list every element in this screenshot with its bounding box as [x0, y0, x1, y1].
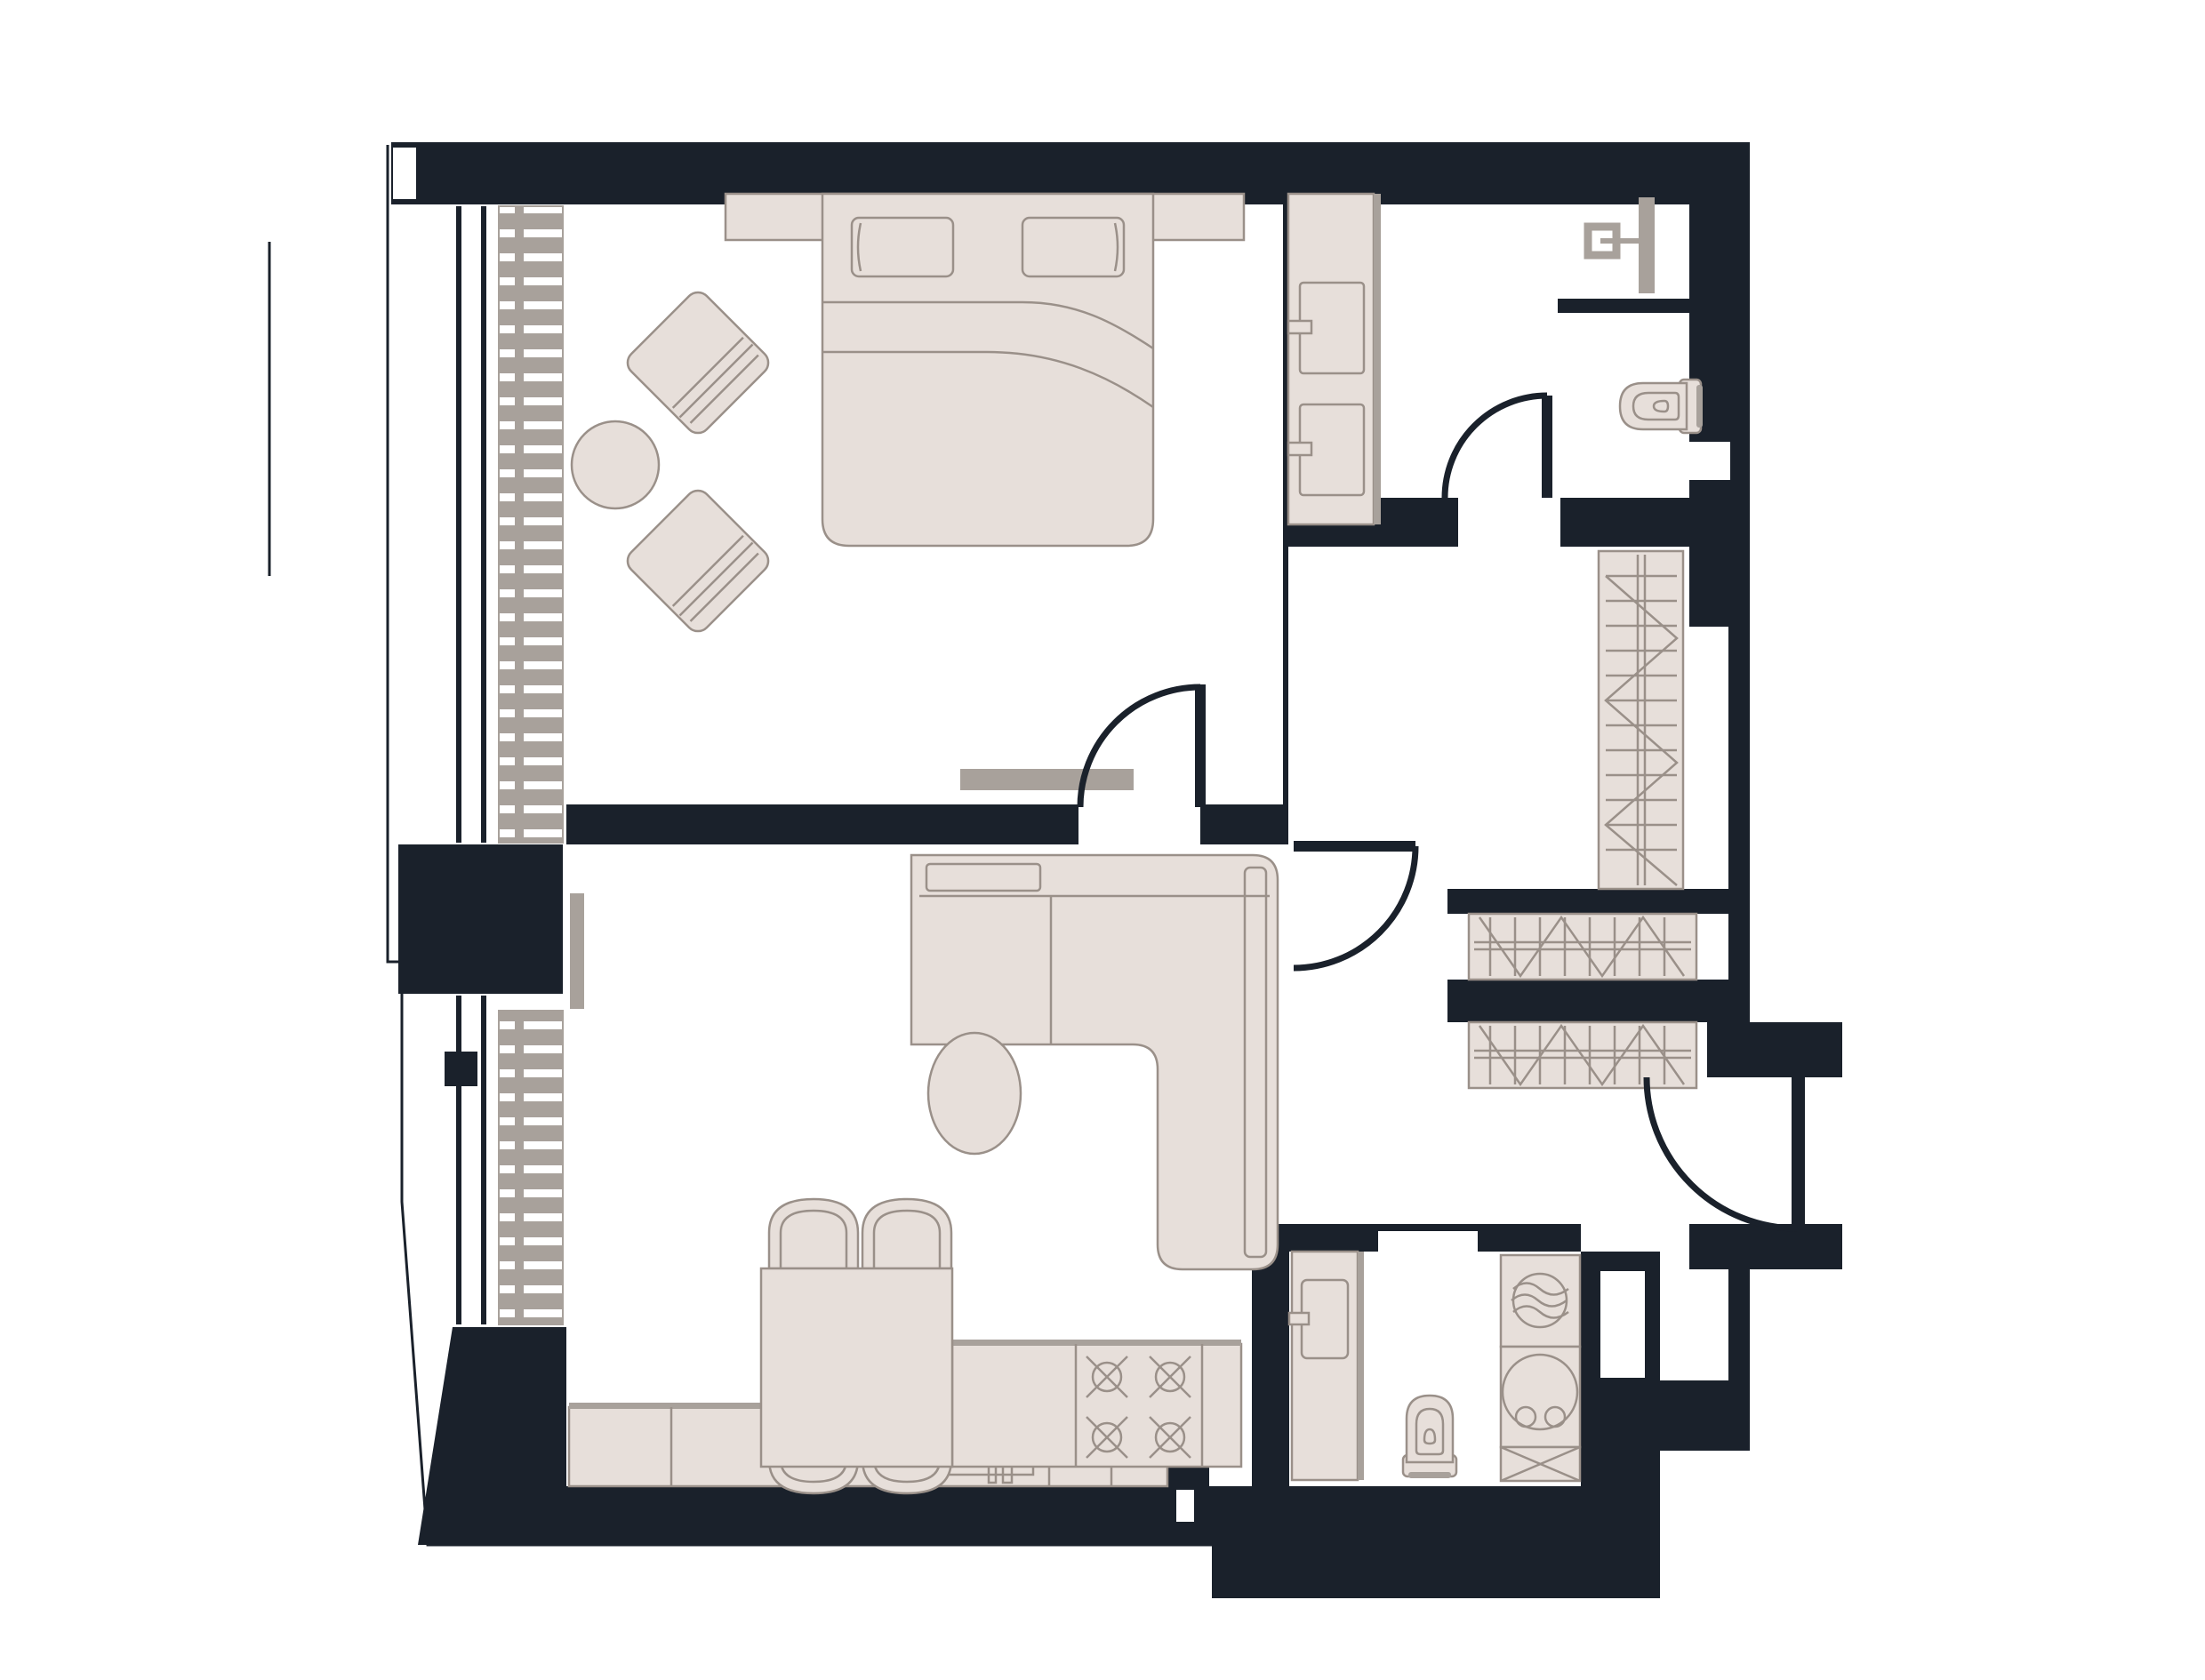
entry-wall-top: [1707, 1022, 1842, 1077]
bathroom-door-leaf: [1542, 396, 1552, 498]
tv-panel: [570, 893, 584, 1009]
laundry-wall-bottom: [1212, 1486, 1660, 1598]
dining-table: [761, 1268, 952, 1467]
living-door-leaf: [1294, 841, 1415, 852]
wall-bedroom-bottom: [566, 804, 1078, 844]
coffee-table: [928, 1033, 1021, 1154]
room-laundry-bathroom: [1289, 1252, 1580, 1481]
entrance-door-swing-arc: [1647, 1077, 1798, 1228]
floor-plan: [0, 0, 2205, 1680]
armchair: [622, 287, 774, 438]
wall-left-pier: [398, 844, 563, 994]
radiator-bedroom: [499, 206, 563, 843]
window-frame-line: [481, 996, 486, 1324]
room-living-kitchen: [569, 855, 1278, 1493]
door-swing-arc: [1294, 846, 1415, 968]
laundry-pocket-door-opening: [1378, 1231, 1478, 1252]
cabinet-edge: [1358, 1252, 1364, 1480]
closet-band-upper: [1447, 889, 1728, 914]
windows-left: [445, 206, 563, 1324]
closet-band-lower: [1447, 980, 1728, 1022]
door-swing-arc: [1445, 396, 1547, 498]
wall-bathroom-bottom-right: [1560, 498, 1750, 547]
faucet: [1288, 321, 1311, 333]
floor-plan-canvas: [0, 0, 2205, 1680]
bedroom-door-leaf: [1195, 684, 1206, 807]
toilet: [1620, 380, 1703, 433]
faucet: [1289, 1313, 1309, 1324]
dining-chair: [769, 1199, 858, 1268]
dining-chair: [862, 1199, 951, 1268]
window-frame-line: [481, 206, 486, 843]
pillow: [1022, 218, 1124, 276]
island-edge: [952, 1340, 1241, 1346]
top-left-wall-notch: [393, 148, 416, 199]
shower-glass-panel: [1639, 197, 1655, 293]
entry-wall-bottom: [1689, 1224, 1842, 1269]
armchair: [622, 485, 774, 636]
room-bathroom-main: [1288, 194, 1703, 524]
faucet: [1288, 443, 1311, 455]
double-vanity: [1288, 194, 1374, 524]
window-frame-line: [456, 996, 461, 1324]
washing-machine: [1501, 1347, 1580, 1447]
pillow: [852, 218, 953, 276]
round-side-table: [572, 421, 659, 508]
entrance-door-leaf: [1792, 1077, 1805, 1228]
vanity-counter-edge: [1374, 194, 1381, 524]
right-wall-niche: [1691, 442, 1730, 480]
room-entry: [1647, 1077, 1805, 1228]
radiator-living: [499, 1011, 563, 1324]
wall-right-lower: [1728, 520, 1750, 1077]
tv-console: [960, 769, 1134, 790]
toilet: [1403, 1396, 1456, 1478]
shower-partition: [1558, 299, 1689, 313]
window-casement-mark: [445, 1052, 477, 1086]
bottom-wall-slot: [1176, 1490, 1194, 1522]
washer-dryer-column: [1501, 1255, 1580, 1481]
window-frame-line: [456, 206, 461, 843]
laundry-niche: [1600, 1271, 1645, 1378]
